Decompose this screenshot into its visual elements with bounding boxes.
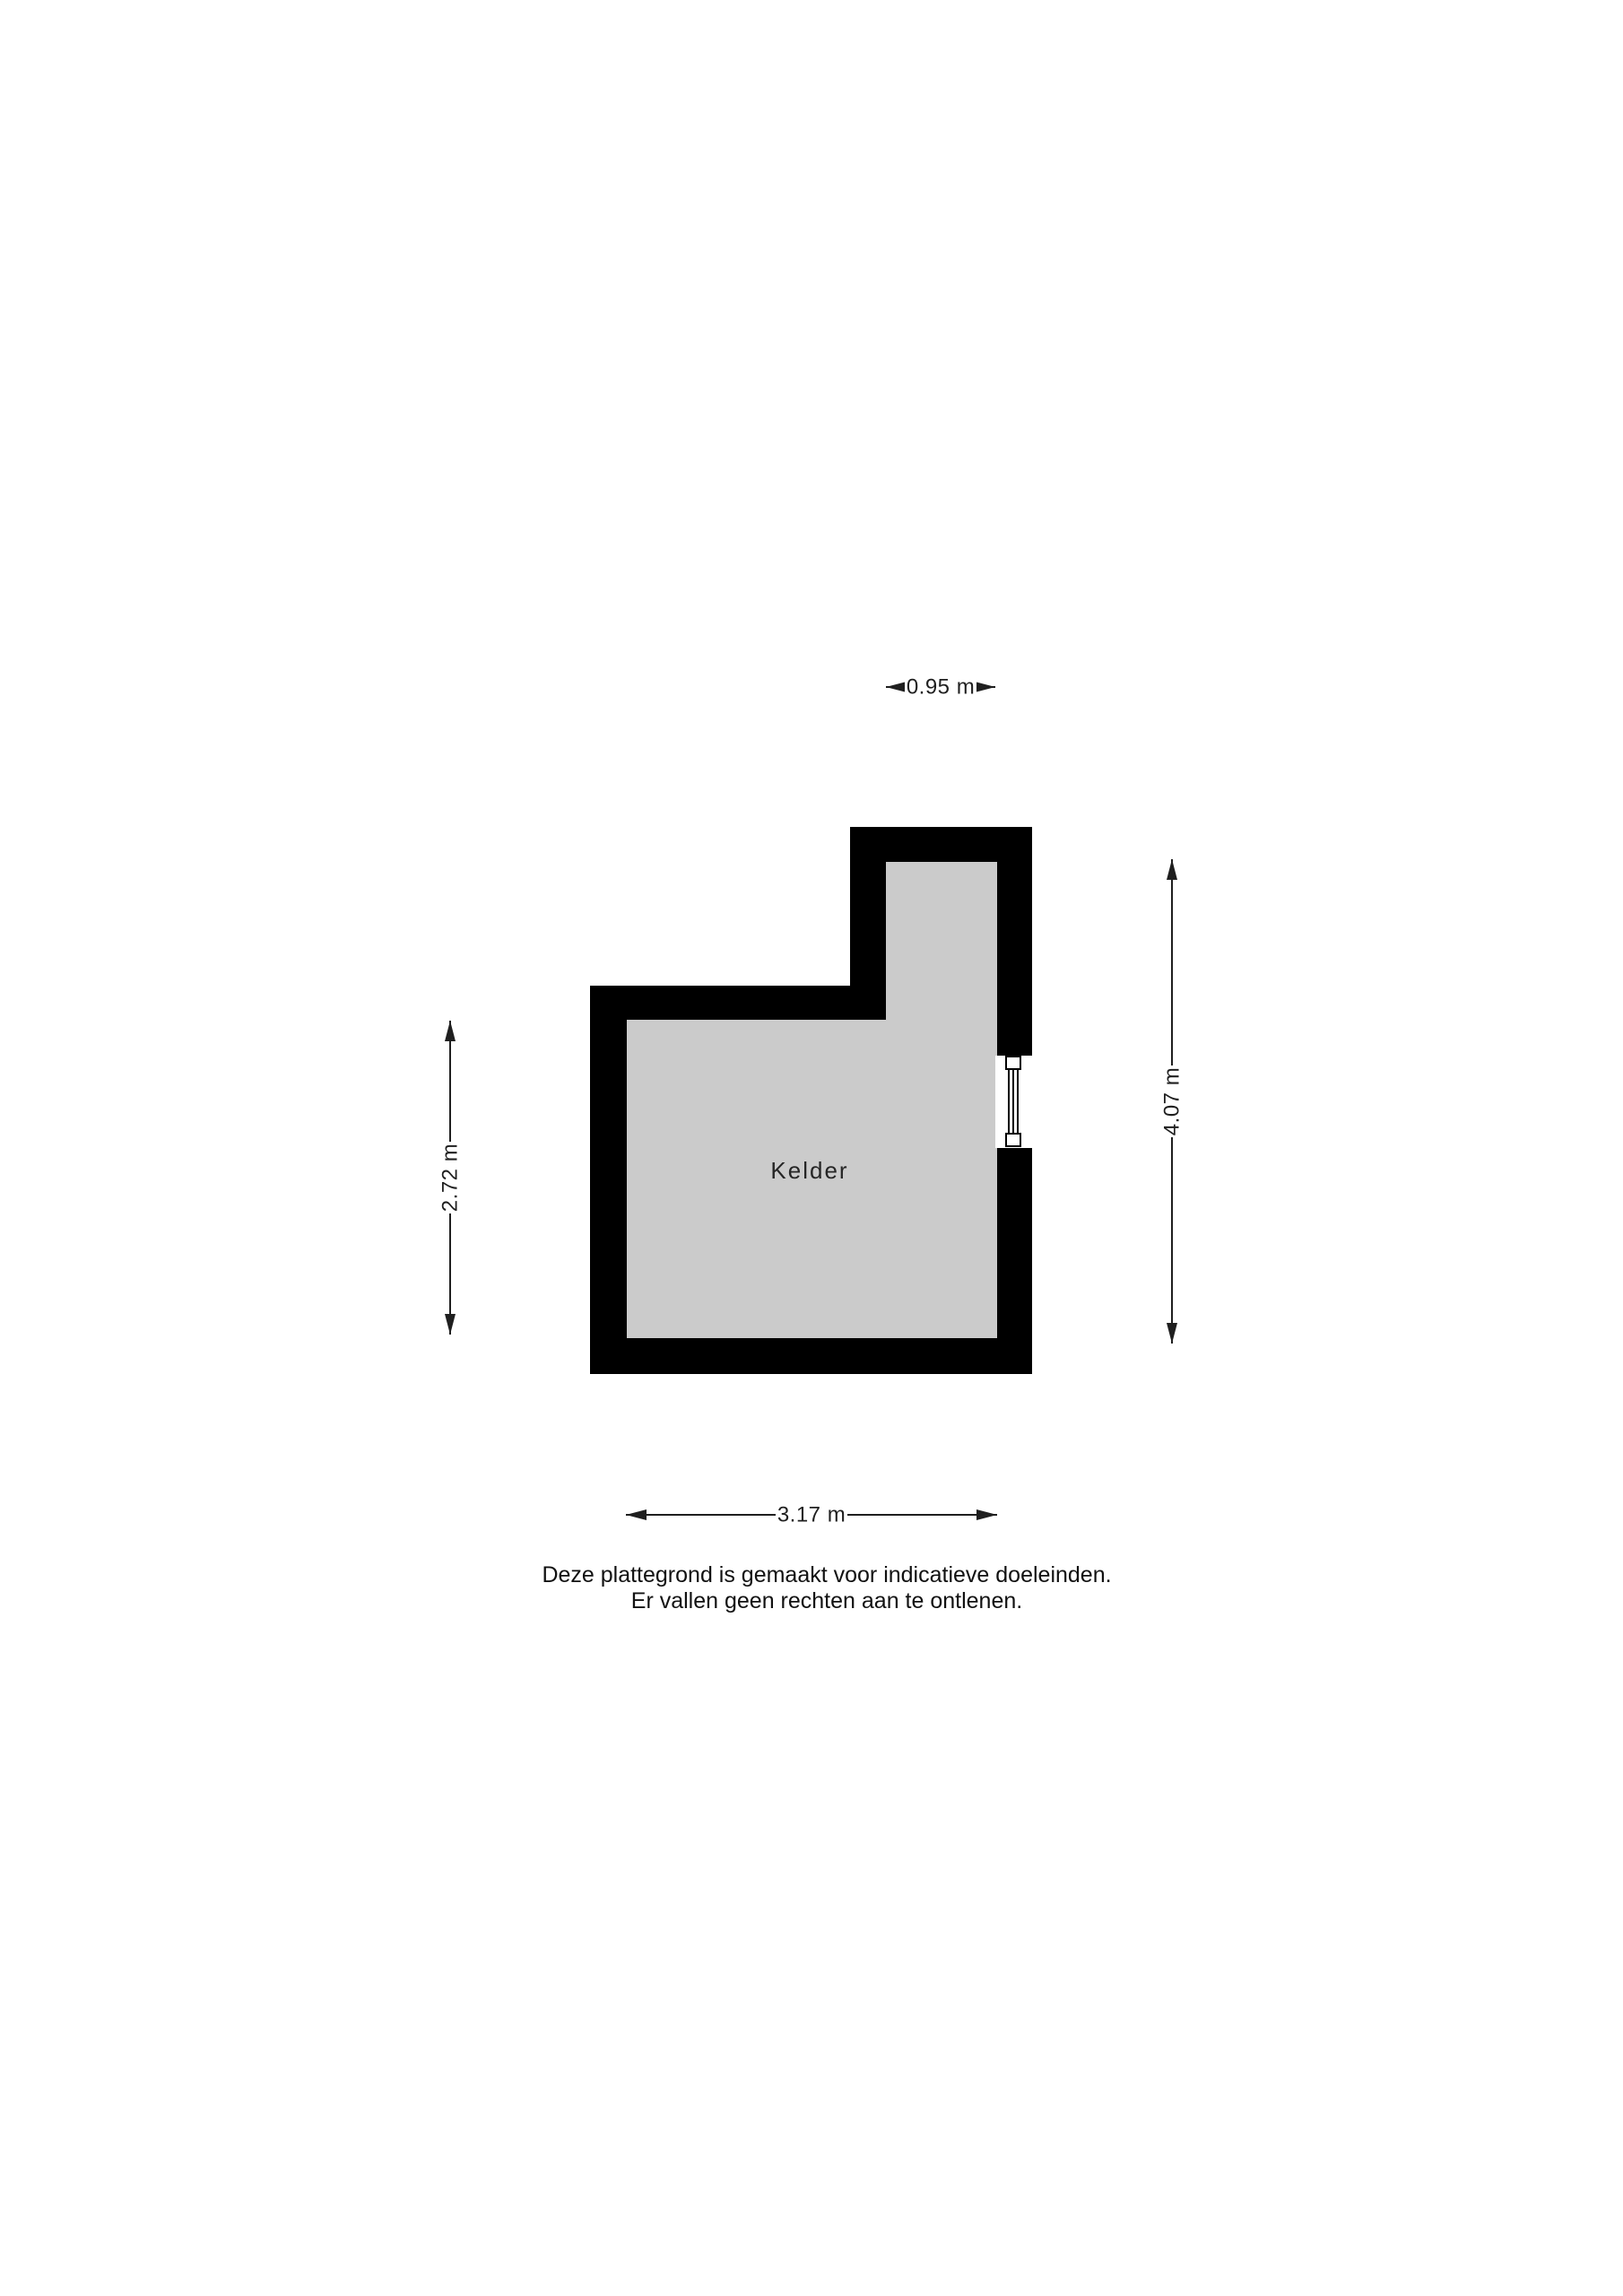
disclaimer-line1: Deze plattegrond is gemaakt voor indicat… — [542, 1562, 1111, 1587]
room-label: Kelder — [770, 1157, 848, 1184]
window-icon — [1006, 1057, 1020, 1146]
dimension-bottom-label: 3.17 m — [777, 1503, 846, 1527]
dimension-left-label: 2.72 m — [438, 1144, 463, 1212]
dimension-top-label: 0.95 m — [907, 675, 975, 700]
floor-plan-page: 0.95 m 4.07 m 2.72 m — [0, 0, 1623, 2296]
dimension-right-label: 4.07 m — [1160, 1067, 1185, 1135]
disclaimer-line2: Er vallen geen rechten aan te ontlenen. — [631, 1588, 1022, 1613]
floor-plan-drawing: 0.95 m 4.07 m 2.72 m — [0, 0, 1623, 2296]
